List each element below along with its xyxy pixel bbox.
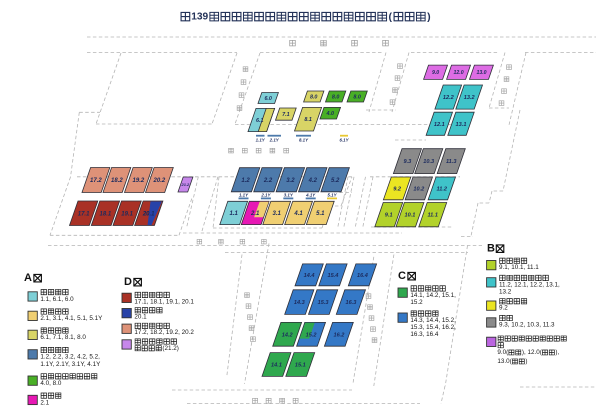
svg-text:2.1: 2.1 xyxy=(250,211,260,217)
svg-text:3.1Y: 3.1Y xyxy=(284,193,294,198)
svg-text:13.0(: 13.0( xyxy=(497,358,512,365)
svg-text:1.1Y: 1.1Y xyxy=(239,193,249,198)
svg-text:15.3: 15.3 xyxy=(318,300,330,306)
svg-text:18.2: 18.2 xyxy=(111,178,123,184)
svg-text:1.1Y: 1.1Y xyxy=(256,138,266,143)
svg-text:14.2: 14.2 xyxy=(282,332,294,338)
svg-text:6.1: 6.1 xyxy=(256,118,264,124)
svg-text:4.0, 8.0: 4.0, 8.0 xyxy=(40,380,62,387)
svg-text:14.4: 14.4 xyxy=(304,273,316,279)
svg-text:15.3, 15.4, 16.2,: 15.3, 15.4, 16.2, xyxy=(410,324,456,331)
svg-text:2.1, 3.1, 4.1, 5.1, 5.1Y: 2.1, 3.1, 4.1, 5.1, 5.1Y xyxy=(40,315,103,322)
svg-text:14.1, 14.2, 15.1,: 14.1, 14.2, 15.1, xyxy=(410,292,456,299)
svg-text:2.1: 2.1 xyxy=(40,399,49,406)
svg-text:11.3: 11.3 xyxy=(446,159,457,165)
svg-text:15.1: 15.1 xyxy=(295,363,306,369)
svg-text:12.0: 12.0 xyxy=(454,70,464,76)
svg-text:13.0: 13.0 xyxy=(476,70,486,76)
svg-text:9.2: 9.2 xyxy=(393,186,402,192)
svg-text:16.3, 16.4: 16.3, 16.4 xyxy=(410,331,439,338)
svg-text:(: ( xyxy=(389,11,393,23)
svg-text:5.1Y: 5.1Y xyxy=(327,193,337,198)
svg-text:8.0: 8.0 xyxy=(310,94,318,100)
svg-text:14.3, 14.4, 15.2,: 14.3, 14.4, 15.2, xyxy=(410,317,456,324)
svg-text:20.1: 20.1 xyxy=(134,314,147,321)
svg-text:13.2: 13.2 xyxy=(464,95,476,101)
svg-text:8.0: 8.0 xyxy=(332,94,340,100)
svg-text:4.1: 4.1 xyxy=(293,211,303,217)
svg-text:14.1: 14.1 xyxy=(271,363,282,369)
svg-text:1.1: 1.1 xyxy=(230,211,239,217)
svg-text:12.1: 12.1 xyxy=(434,122,445,128)
svg-text:4.0: 4.0 xyxy=(326,111,335,117)
svg-text:9.3, 10.2, 10.3, 11.3: 9.3, 10.2, 10.3, 11.3 xyxy=(499,322,555,329)
svg-text:15.2: 15.2 xyxy=(410,299,423,306)
svg-text:10.2: 10.2 xyxy=(413,186,425,192)
svg-text:): ) xyxy=(427,11,431,23)
svg-text:6.0: 6.0 xyxy=(264,96,272,102)
svg-text:4.1Y: 4.1Y xyxy=(305,193,316,198)
svg-text:6.1Y: 6.1Y xyxy=(339,138,349,143)
svg-text:7.1: 7.1 xyxy=(282,112,290,118)
svg-text:1.1, 6.1, 6.0: 1.1, 6.1, 6.0 xyxy=(40,296,74,303)
svg-text:139: 139 xyxy=(191,12,208,23)
svg-text:2.1Y: 2.1Y xyxy=(260,193,271,198)
svg-text:16.4: 16.4 xyxy=(357,273,369,279)
svg-text:(21.2): (21.2) xyxy=(162,345,178,352)
svg-text:13.2: 13.2 xyxy=(499,289,512,296)
svg-text:): ) xyxy=(525,358,527,365)
svg-text:4.2: 4.2 xyxy=(308,178,318,184)
svg-text:12.2: 12.2 xyxy=(443,95,455,101)
svg-text:9.2: 9.2 xyxy=(499,305,508,312)
svg-text:), 12.0(: ), 12.0( xyxy=(522,349,543,356)
svg-text:19.1: 19.1 xyxy=(121,211,133,217)
svg-text:3.2: 3.2 xyxy=(286,178,295,184)
svg-text:5.1: 5.1 xyxy=(316,211,325,217)
svg-text:9.0: 9.0 xyxy=(432,70,439,76)
svg-text:16.2: 16.2 xyxy=(333,332,345,338)
svg-text:A: A xyxy=(24,272,32,284)
svg-text:1.2, 2.2, 3.2, 4.2, 5.2,: 1.2, 2.2, 3.2, 4.2, 5.2, xyxy=(40,354,100,361)
svg-text:D: D xyxy=(124,276,132,288)
svg-text:17.2: 17.2 xyxy=(90,178,102,184)
svg-text:),: ), xyxy=(555,349,559,356)
svg-text:15.2: 15.2 xyxy=(306,332,318,338)
svg-text:C: C xyxy=(398,270,406,282)
svg-text:1.1Y, 2.1Y, 3.1Y, 4.1Y: 1.1Y, 2.1Y, 3.1Y, 4.1Y xyxy=(40,361,101,368)
svg-text:13.1: 13.1 xyxy=(456,122,467,128)
svg-text:2.1Y: 2.1Y xyxy=(269,138,280,143)
svg-text:2.2: 2.2 xyxy=(263,178,273,184)
svg-text:B: B xyxy=(487,243,495,255)
svg-text:18.1: 18.1 xyxy=(100,211,112,217)
svg-text:5.2: 5.2 xyxy=(331,178,340,184)
svg-text:15.4: 15.4 xyxy=(327,273,339,279)
svg-text:9.1, 10.1, 11.1: 9.1, 10.1, 11.1 xyxy=(499,264,539,271)
svg-text:10.1: 10.1 xyxy=(404,213,415,219)
svg-text:9.3: 9.3 xyxy=(404,159,413,165)
svg-text:11.1: 11.1 xyxy=(427,213,437,219)
svg-text:21.2: 21.2 xyxy=(181,182,191,187)
svg-text:9.0(: 9.0( xyxy=(497,349,509,356)
svg-text:8.1: 8.1 xyxy=(304,117,312,123)
svg-text:20.1: 20.1 xyxy=(142,211,155,217)
svg-text:3.1: 3.1 xyxy=(273,211,282,217)
svg-text:8.0: 8.0 xyxy=(353,94,361,100)
svg-text:20.2: 20.2 xyxy=(153,178,166,184)
svg-text:8.1Y: 8.1Y xyxy=(299,138,309,143)
svg-text:1.2: 1.2 xyxy=(241,178,250,184)
svg-text:6.1, 7.1, 8.1, 8.0: 6.1, 7.1, 8.1, 8.0 xyxy=(40,334,86,341)
svg-text:17.1: 17.1 xyxy=(78,211,90,217)
svg-text:10.3: 10.3 xyxy=(423,159,435,165)
svg-text:19.2: 19.2 xyxy=(133,178,145,184)
svg-text:16.3: 16.3 xyxy=(345,300,357,306)
svg-text:9.1: 9.1 xyxy=(385,213,393,219)
svg-text:11.2: 11.2 xyxy=(437,186,448,192)
svg-text:14.3: 14.3 xyxy=(294,300,306,306)
svg-text:11.2, 12.1, 12.2, 13.1,: 11.2, 12.1, 12.2, 13.1, xyxy=(499,281,560,288)
svg-text:17.1, 18.1, 19.1, 20.1: 17.1, 18.1, 19.1, 20.1 xyxy=(134,298,194,305)
svg-text:17.2, 18.2, 19.2, 20.2: 17.2, 18.2, 19.2, 20.2 xyxy=(134,329,194,336)
